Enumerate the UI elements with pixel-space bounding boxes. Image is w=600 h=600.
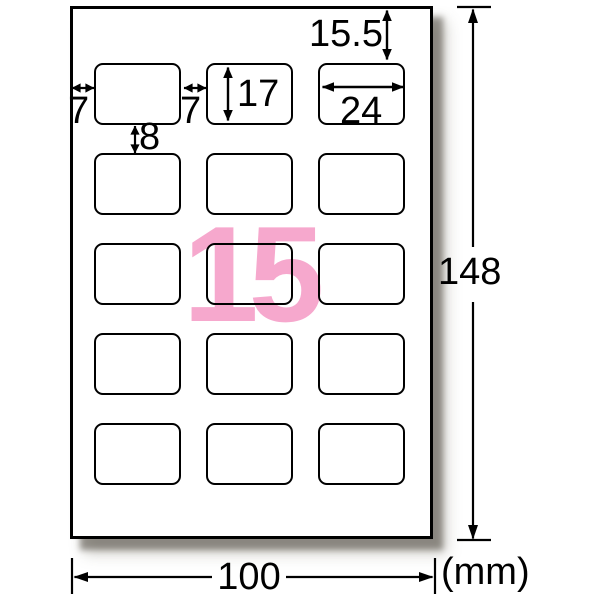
label-cell [94, 243, 181, 305]
dim-left-margin: 7 [68, 92, 89, 130]
label-cell [318, 423, 405, 485]
label-cell [206, 423, 293, 485]
label-cell [94, 423, 181, 485]
label-cell [318, 333, 405, 395]
dim-label-height: 17 [237, 75, 279, 113]
label-cell [94, 63, 181, 125]
dim-sheet-width: 100 [214, 558, 284, 596]
dim-sheet-height: 148 [438, 253, 501, 291]
label-cell [206, 153, 293, 215]
label-height-arrow [222, 66, 234, 122]
dim-label-width: 24 [340, 92, 382, 130]
diagram-canvas: 15 7 7 8 17 24 15.5 [0, 0, 600, 600]
dim-top-margin: 15.5 [309, 15, 383, 53]
dim-column-gap: 7 [180, 92, 201, 130]
label-cell [94, 333, 181, 395]
label-cell [318, 153, 405, 215]
label-cell [206, 333, 293, 395]
label-cell [206, 243, 293, 305]
dim-row-gap: 8 [139, 118, 160, 156]
label-cell [318, 243, 405, 305]
label-cell [94, 153, 181, 215]
unit-label: (mm) [441, 553, 530, 591]
